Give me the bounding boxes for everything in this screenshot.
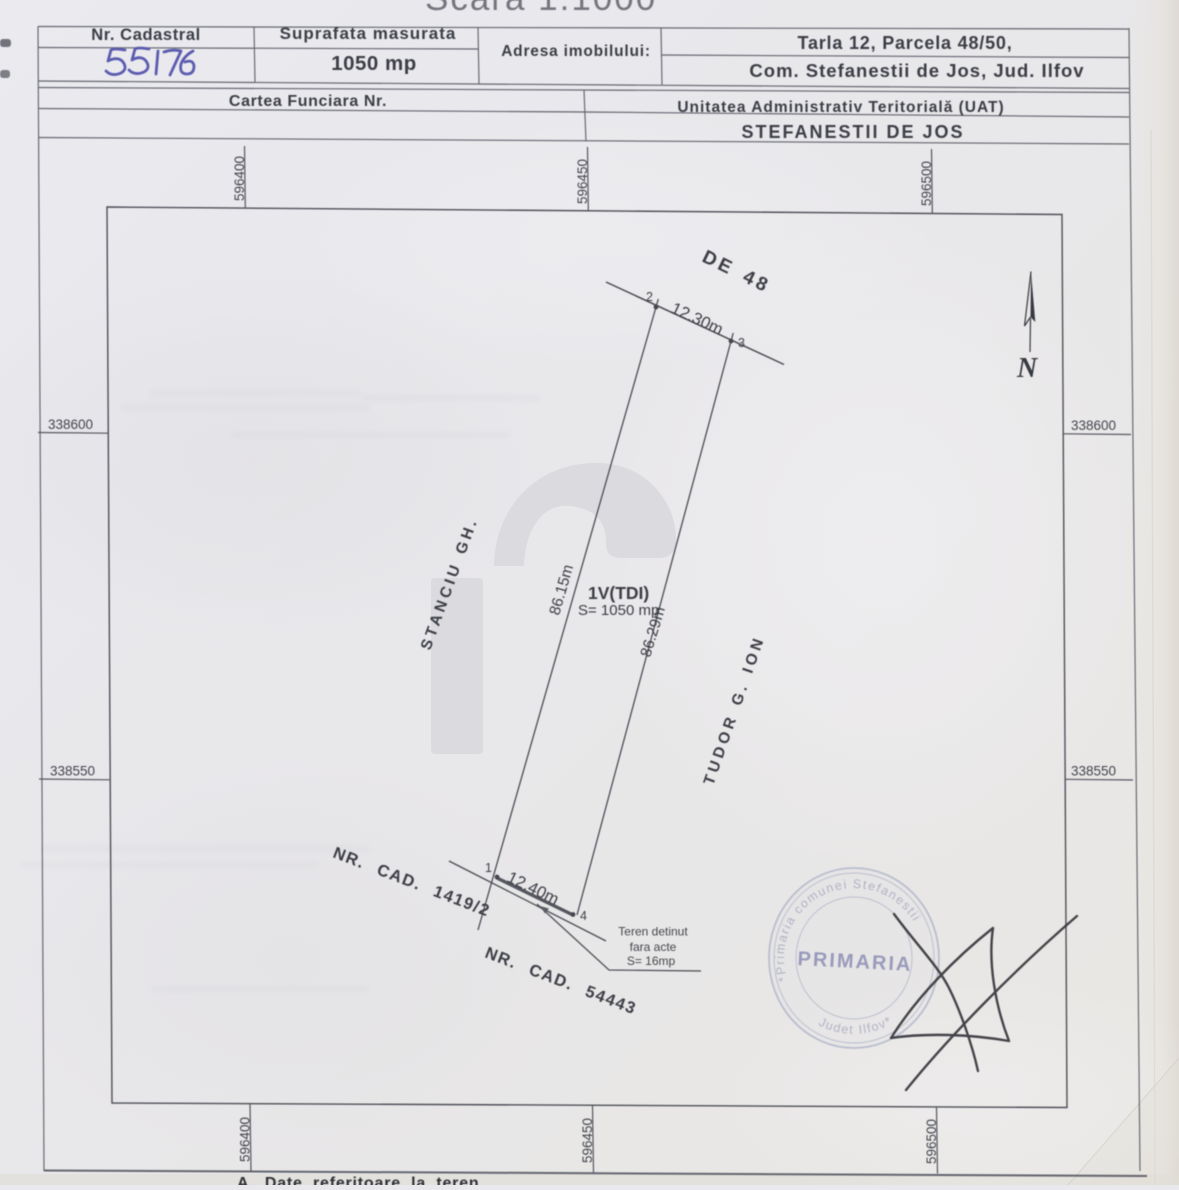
svg-text:S= 16mp: S= 16mp xyxy=(627,954,676,968)
svg-text:338550: 338550 xyxy=(50,764,95,779)
svg-text:2: 2 xyxy=(646,290,653,304)
svg-text:596450: 596450 xyxy=(580,1118,595,1163)
svg-text:A. Date referitoare la ter: A. Date referitoare la teren xyxy=(237,1175,479,1185)
svg-text:Nr. Cadastral: Nr. Cadastral xyxy=(91,26,201,44)
svg-text:3: 3 xyxy=(738,336,745,350)
svg-text:STEFANESTII DE JOS: STEFANESTII DE JOS xyxy=(741,122,964,142)
svg-text:596400: 596400 xyxy=(238,1117,253,1162)
svg-text:596400: 596400 xyxy=(232,156,247,201)
svg-text:338600: 338600 xyxy=(1071,418,1116,433)
svg-text:Suprafata masurata: Suprafata masurata xyxy=(280,24,457,43)
svg-text:Adresa imobilului:: Adresa imobilului: xyxy=(501,43,651,60)
svg-text:1V(TDI): 1V(TDI) xyxy=(588,583,649,603)
svg-text:Unitatea Administrativ Teritor: Unitatea Administrativ Teritorială (UAT) xyxy=(677,99,1004,116)
svg-text:4: 4 xyxy=(580,909,587,923)
svg-text:1050 mp: 1050 mp xyxy=(331,52,417,75)
svg-text:338600: 338600 xyxy=(48,417,93,432)
svg-text:Com. Stefanestii de Jos, Jud.: Com. Stefanestii de Jos, Jud. Ilfov xyxy=(749,60,1084,81)
svg-text:fara acte: fara acte xyxy=(630,940,677,954)
svg-text:Scara 1:1000: Scara 1:1000 xyxy=(425,0,657,18)
svg-text:596450: 596450 xyxy=(575,159,590,204)
svg-text:Teren detinut: Teren detinut xyxy=(618,925,688,939)
svg-text:338550: 338550 xyxy=(1071,764,1116,779)
svg-text:596500: 596500 xyxy=(919,161,934,206)
svg-text:596500: 596500 xyxy=(924,1119,939,1164)
svg-text:S= 1050 mp: S= 1050 mp xyxy=(578,602,659,619)
svg-text:1: 1 xyxy=(485,861,492,875)
svg-text:N: N xyxy=(1016,353,1039,384)
svg-text:Cartea Funciara Nr.: Cartea Funciara Nr. xyxy=(229,93,387,110)
svg-text:Tarla 12, Parcela 48/50,: Tarla 12, Parcela 48/50, xyxy=(797,33,1012,53)
